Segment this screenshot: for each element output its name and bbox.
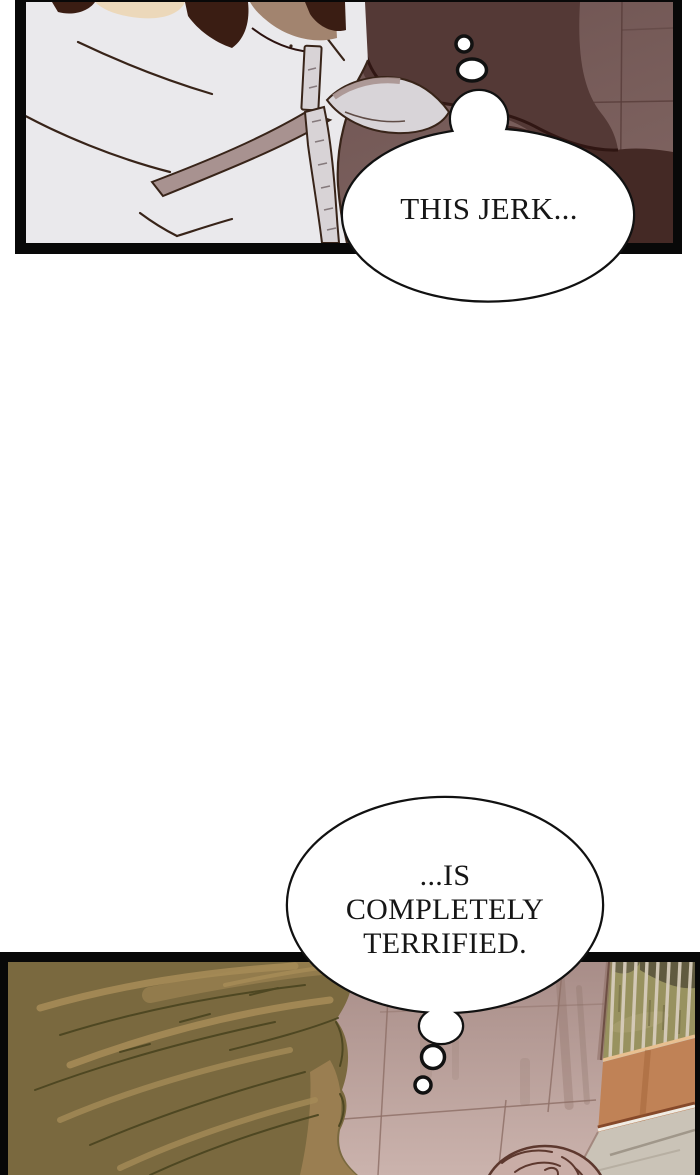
hair-back-of-head — [8, 962, 358, 1175]
comic-artwork — [0, 0, 700, 1175]
comic-page: THIS JERK... ...IS COMPLETELY TERRIFIED. — [0, 0, 700, 1175]
thought-bubble-2-text: ...IS COMPLETELY TERRIFIED. — [295, 859, 595, 961]
zipper-pull — [301, 46, 321, 111]
thought-bubble-1-text: THIS JERK... — [339, 192, 639, 225]
